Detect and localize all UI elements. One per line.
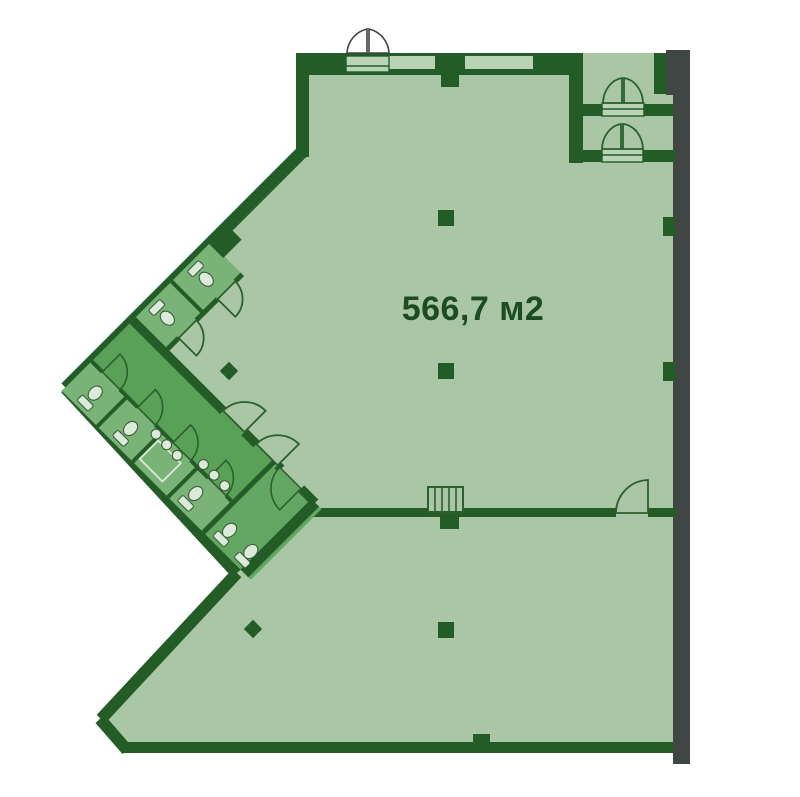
wall-pilaster: [441, 75, 459, 87]
wall-pilaster: [663, 217, 675, 236]
stairs-icon: [428, 487, 463, 512]
vestibule-left-wall: [569, 53, 583, 163]
column: [438, 622, 454, 638]
left-wall: [296, 53, 309, 157]
double-door-swing-icon: [369, 29, 389, 53]
wall-pilaster: [440, 517, 459, 529]
top-right-wall-block: [666, 50, 690, 95]
window: [465, 56, 533, 69]
top-wall: [296, 53, 583, 75]
vestibule-right-jamb: [654, 53, 666, 94]
wall-pilaster: [473, 734, 490, 743]
window: [387, 56, 435, 69]
door-threshold: [346, 56, 389, 72]
floor-plan-svg: 566,7 м2: [0, 0, 800, 797]
floor-plan-page: 566,7 м2: [0, 0, 800, 797]
top-entrance-double-door: [346, 29, 389, 72]
area-label: 566,7 м2: [402, 290, 545, 328]
wall-pilaster: [663, 362, 675, 381]
column: [438, 210, 454, 226]
right-exterior-wall: [673, 50, 690, 764]
double-door-swing-icon: [347, 29, 367, 53]
bottom-wall: [121, 742, 677, 753]
column: [438, 363, 454, 379]
